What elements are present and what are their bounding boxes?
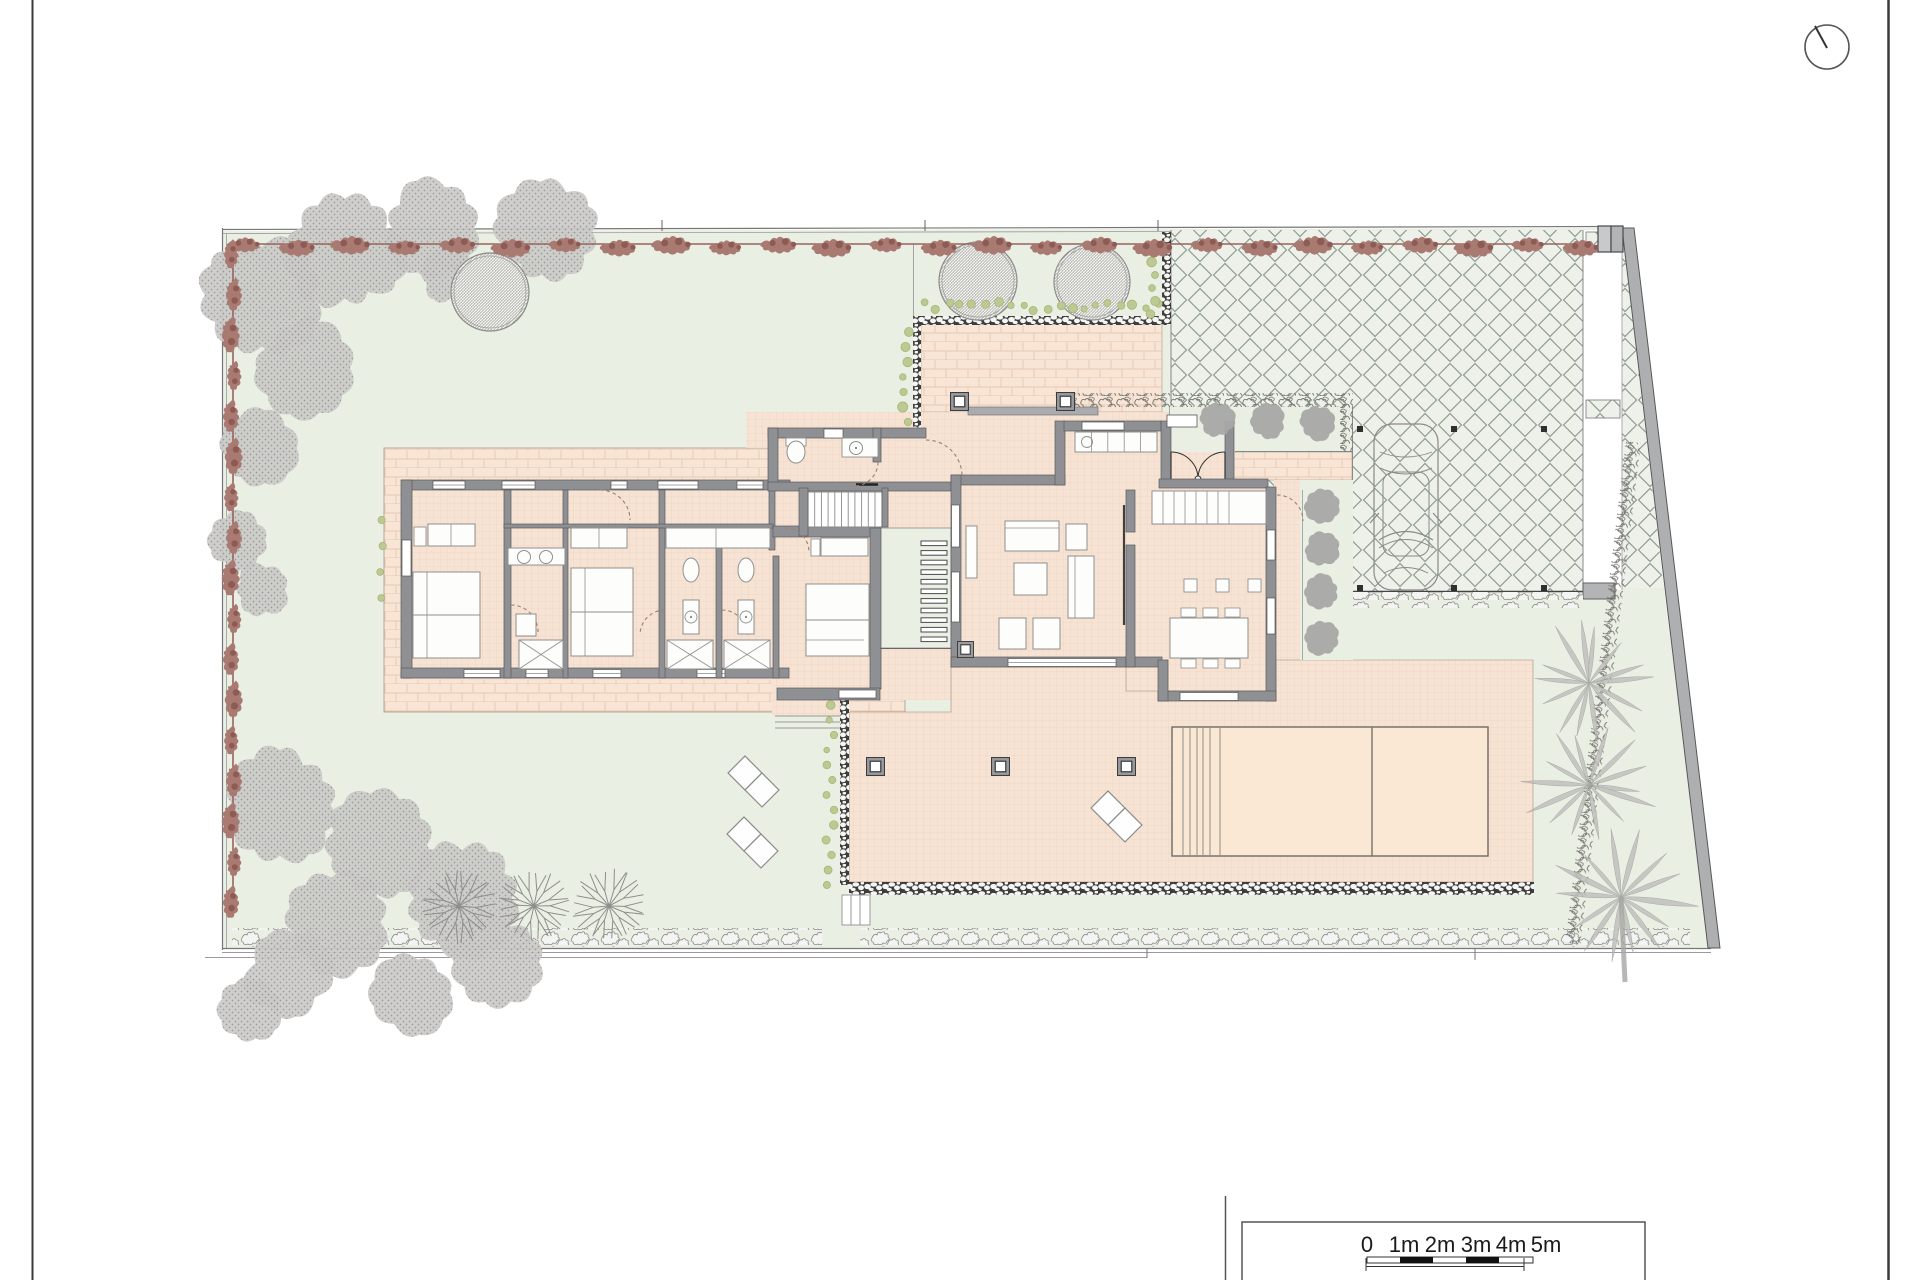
svg-text:0: 0 [1361, 1232, 1373, 1257]
svg-text:2m: 2m [1425, 1232, 1456, 1257]
svg-text:4m: 4m [1496, 1232, 1527, 1257]
svg-text:1m: 1m [1389, 1232, 1420, 1257]
svg-text:5m: 5m [1531, 1232, 1562, 1257]
svg-text:3m: 3m [1461, 1232, 1492, 1257]
